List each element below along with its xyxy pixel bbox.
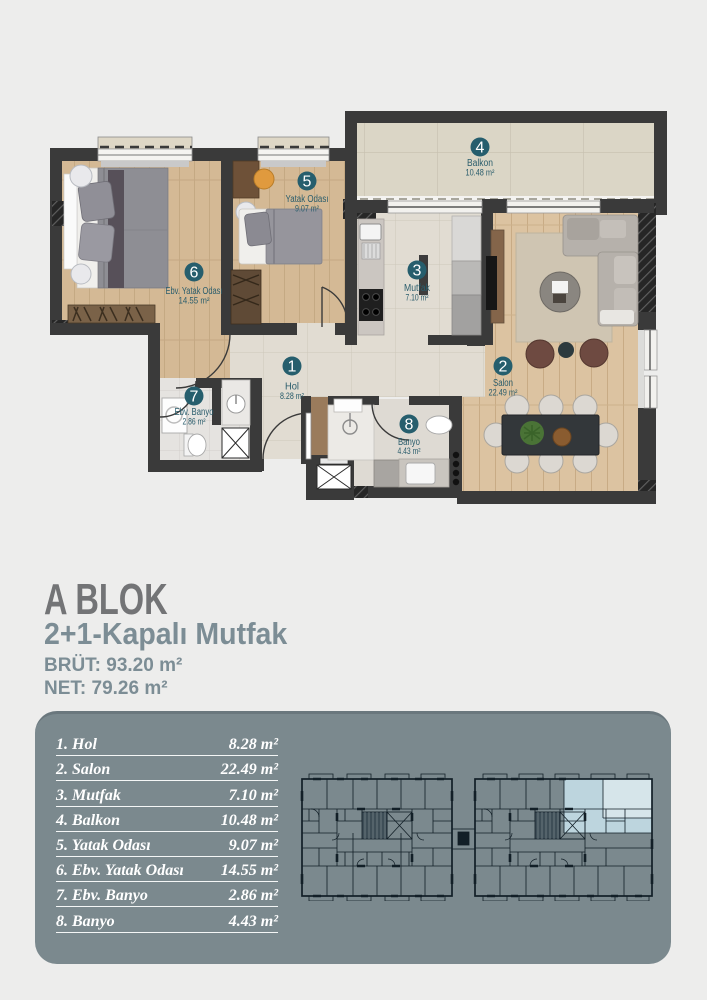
svg-text:9.07 m²: 9.07 m²: [295, 204, 319, 214]
svg-text:4.43 m²: 4.43 m²: [398, 446, 421, 456]
svg-text:22.49 m²: 22.49 m²: [489, 388, 518, 398]
svg-text:7.10 m²: 7.10 m²: [406, 293, 429, 303]
svg-text:10.48 m²: 10.48 m²: [466, 168, 495, 178]
svg-text:7: 7: [190, 389, 199, 406]
svg-text:6: 6: [190, 265, 199, 282]
svg-text:14.55 m²: 14.55 m²: [179, 296, 210, 306]
svg-text:8.28 m²: 8.28 m²: [280, 391, 304, 401]
svg-text:1: 1: [288, 359, 297, 376]
svg-text:3: 3: [413, 263, 422, 280]
svg-text:2: 2: [499, 359, 508, 376]
svg-text:5: 5: [303, 174, 312, 191]
svg-text:8: 8: [405, 417, 414, 434]
svg-text:2.86 m²: 2.86 m²: [183, 417, 206, 427]
svg-text:4: 4: [476, 140, 485, 157]
